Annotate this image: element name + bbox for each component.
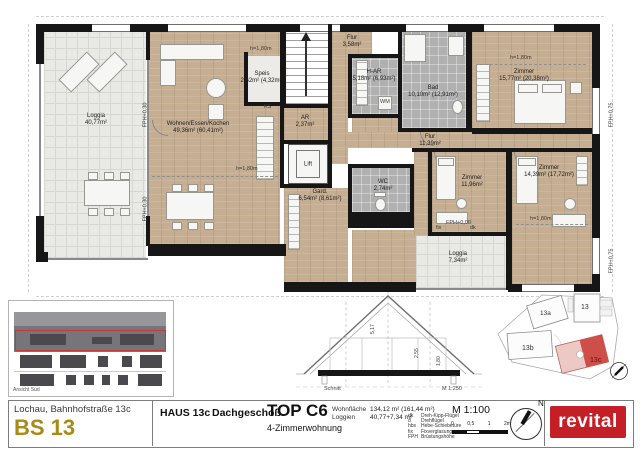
parapet-annotation: FPH+0,75	[608, 249, 614, 274]
wall	[466, 24, 472, 128]
site-compass-icon	[611, 363, 628, 380]
wall	[592, 24, 600, 88]
scale-bar-ticks: 00,512m	[451, 421, 511, 427]
room-label-wc: WC2,74m²	[374, 179, 393, 193]
dimension-line-top	[36, 16, 604, 17]
height-annotation: h=1,80m	[250, 46, 272, 52]
title-block-divider	[152, 400, 153, 446]
shelf	[356, 60, 368, 106]
room-label-loggia-west: Loggia40,77m²	[85, 113, 107, 127]
height-annotation: h=1,80m	[530, 216, 552, 222]
pillow	[438, 158, 454, 166]
lift-label: Lift	[304, 162, 312, 169]
elevation-window	[122, 356, 132, 367]
wall	[280, 184, 332, 188]
scale-bar	[466, 430, 480, 434]
wall	[472, 128, 592, 134]
elevation-window	[84, 375, 94, 385]
wall	[280, 104, 284, 188]
window	[484, 24, 554, 32]
wall	[350, 114, 402, 118]
wall	[428, 148, 432, 236]
scale-bar	[480, 430, 508, 434]
wall	[148, 244, 286, 256]
area-label: Loggien	[332, 414, 355, 421]
room-label-bad: Bad10,10m² (12,91m²)	[408, 85, 458, 99]
washbasin	[448, 36, 464, 56]
wall	[280, 104, 332, 108]
coffee-table	[206, 78, 226, 98]
loggia-glazing	[39, 64, 41, 216]
section-label: Schnitt	[324, 386, 341, 392]
toilet	[375, 198, 386, 211]
dresser	[576, 156, 588, 186]
chair	[172, 184, 182, 192]
parapet-annotation: FPH+0,30	[142, 197, 148, 222]
window	[592, 88, 600, 134]
wall	[130, 24, 168, 32]
chair	[204, 222, 214, 230]
room-label-flur-main: Flur11,39m²	[419, 134, 441, 148]
wall	[280, 24, 286, 108]
stair-arrow-line	[305, 40, 307, 96]
partition	[147, 60, 149, 216]
desk	[552, 214, 586, 227]
armchair	[208, 104, 224, 120]
shower	[404, 34, 426, 62]
wall	[592, 134, 600, 238]
appliance-label: WM	[380, 99, 390, 105]
wall	[352, 212, 412, 228]
section-dim: 2,55	[414, 348, 420, 358]
chair	[104, 208, 114, 216]
wall	[506, 148, 512, 290]
wall	[36, 24, 92, 32]
area-value: 134,12 m² (161,44 m²)	[370, 406, 435, 413]
wall	[36, 252, 48, 262]
parapet-annotation: FPH+0,75	[608, 103, 614, 128]
height-annotation: h=1,80m	[510, 55, 532, 61]
window	[92, 24, 130, 32]
window-type-label: fix	[436, 225, 442, 231]
chair	[172, 222, 182, 230]
room-flur-main2	[332, 132, 592, 148]
chair	[188, 184, 198, 192]
title-block-divider	[544, 400, 545, 446]
unit-label: TOP C6	[267, 401, 328, 421]
pillow	[518, 84, 538, 93]
desk-chair	[564, 198, 576, 210]
window	[592, 238, 600, 274]
room-label-har: H-AR5,18m² (6,93m²)	[352, 69, 395, 83]
wall	[146, 32, 150, 60]
window	[300, 24, 340, 32]
plan-scale: M 1:100	[452, 404, 490, 416]
roof-slope-line	[480, 64, 586, 65]
elevation-window	[66, 375, 76, 385]
desk-chair	[456, 198, 467, 209]
parapet-annotation: FPH+0,00	[446, 220, 471, 226]
elevation-window	[20, 355, 52, 368]
north-label: N	[538, 399, 544, 408]
elevation-floor-line	[14, 371, 166, 372]
sofa	[160, 44, 224, 60]
stair-arrow-icon	[301, 32, 311, 41]
wall	[246, 24, 300, 32]
area-label: Wohnfläche	[332, 406, 366, 413]
dining-table	[166, 192, 214, 220]
room-label-loggia-south: Loggia7,34m²	[449, 251, 468, 265]
room-label-speis: Speis2,62m² (4,32m²)	[240, 71, 283, 85]
chair	[104, 172, 114, 180]
chair	[120, 172, 130, 180]
room-label-flur-top: Flur3,58m²	[343, 35, 362, 49]
revital-logo: revital	[550, 406, 626, 438]
section-scale: M 1:250	[442, 386, 462, 392]
pillow	[542, 84, 562, 93]
elevation-window	[118, 375, 128, 385]
toilet	[452, 100, 463, 114]
wall	[352, 54, 400, 58]
wall	[36, 24, 44, 64]
site-label-13c: 13c	[590, 357, 602, 364]
window	[406, 24, 448, 32]
elevation-highlight-box	[15, 330, 166, 351]
wardrobe	[476, 64, 490, 122]
loggia-edge	[48, 258, 148, 260]
project-code: BS 13	[14, 415, 75, 441]
height-annotation: h=1,80m	[236, 166, 258, 172]
unit-type-label: 4-Zimmerwohnung	[267, 423, 342, 433]
plan-sheet: { "plan": { "rooms": [ {"name":"Loggia",…	[0, 0, 640, 453]
project-address: Lochau, Bahnhofstraße 13c	[14, 404, 131, 415]
appliance-label: KS	[264, 104, 271, 110]
site-label-13a: 13a	[540, 310, 551, 317]
wall	[348, 54, 352, 118]
kitchen-counter	[256, 116, 274, 180]
house-label: HAUS 13c	[160, 407, 210, 419]
roof-slope-line	[516, 224, 588, 225]
wall	[340, 24, 406, 32]
elevation-window	[138, 374, 162, 386]
elevation-window	[60, 355, 86, 368]
site-label-13b: 13b	[522, 345, 534, 352]
roof-slope-line	[152, 176, 278, 177]
window	[168, 24, 246, 32]
wall	[398, 128, 472, 132]
corridor-mid	[414, 148, 428, 236]
room-label-zimmer-mid: Zimmer11,96m²	[461, 175, 483, 189]
abbreviation-legend: dkDreh-Kipp-Flügel dDrehflügel hbsHebe-S…	[408, 414, 461, 440]
chair	[204, 184, 214, 192]
dimension-line-left	[28, 24, 29, 292]
legend-row: FPHBrüstungshöhe	[408, 435, 461, 440]
room-label-zimmer-se: Zimmer14,39m² (17,72m²)	[524, 165, 574, 179]
sofa	[160, 60, 176, 86]
chair	[88, 172, 98, 180]
site-label-13: 13	[581, 304, 589, 311]
elevation-label: Ansicht Süd	[13, 387, 40, 393]
section-dim: 1,80	[436, 356, 442, 366]
outdoor-table	[84, 180, 130, 206]
section-panel: 5,17 2,55 1,80 Schnitt M 1:250	[296, 290, 482, 396]
chair	[88, 208, 98, 216]
room-label-living: Wohnen/Essen/Kochen49,36m² (60,41m²)	[167, 121, 230, 135]
area-value: 40,77+7,34 m²	[370, 414, 412, 421]
scale-bar	[452, 430, 466, 434]
elevation-window	[102, 375, 110, 385]
room-label-gard: Gard.6,54m² (8,61m²)	[298, 189, 341, 203]
elevation-window	[140, 355, 162, 368]
elevation-window	[98, 356, 108, 367]
wall	[348, 164, 414, 168]
parapet-annotation: FPH+0,30	[142, 103, 148, 128]
room-label-zimmer-ne: Zimmer15,77m² (20,38m²)	[499, 69, 549, 83]
section-drawing: 5,17 2,55 1,80	[296, 290, 482, 390]
nightstand	[570, 82, 582, 94]
site-plan: 13a 13 13b 13c	[482, 288, 638, 394]
wall	[428, 232, 512, 236]
window-type-label: dk	[470, 225, 476, 231]
chair	[120, 208, 130, 216]
section-dim: 5,17	[370, 324, 376, 334]
corridor-south	[352, 230, 416, 282]
elevation-window	[20, 374, 54, 386]
room-label-ar: AR2,37m²	[296, 115, 315, 129]
chair	[188, 222, 198, 230]
